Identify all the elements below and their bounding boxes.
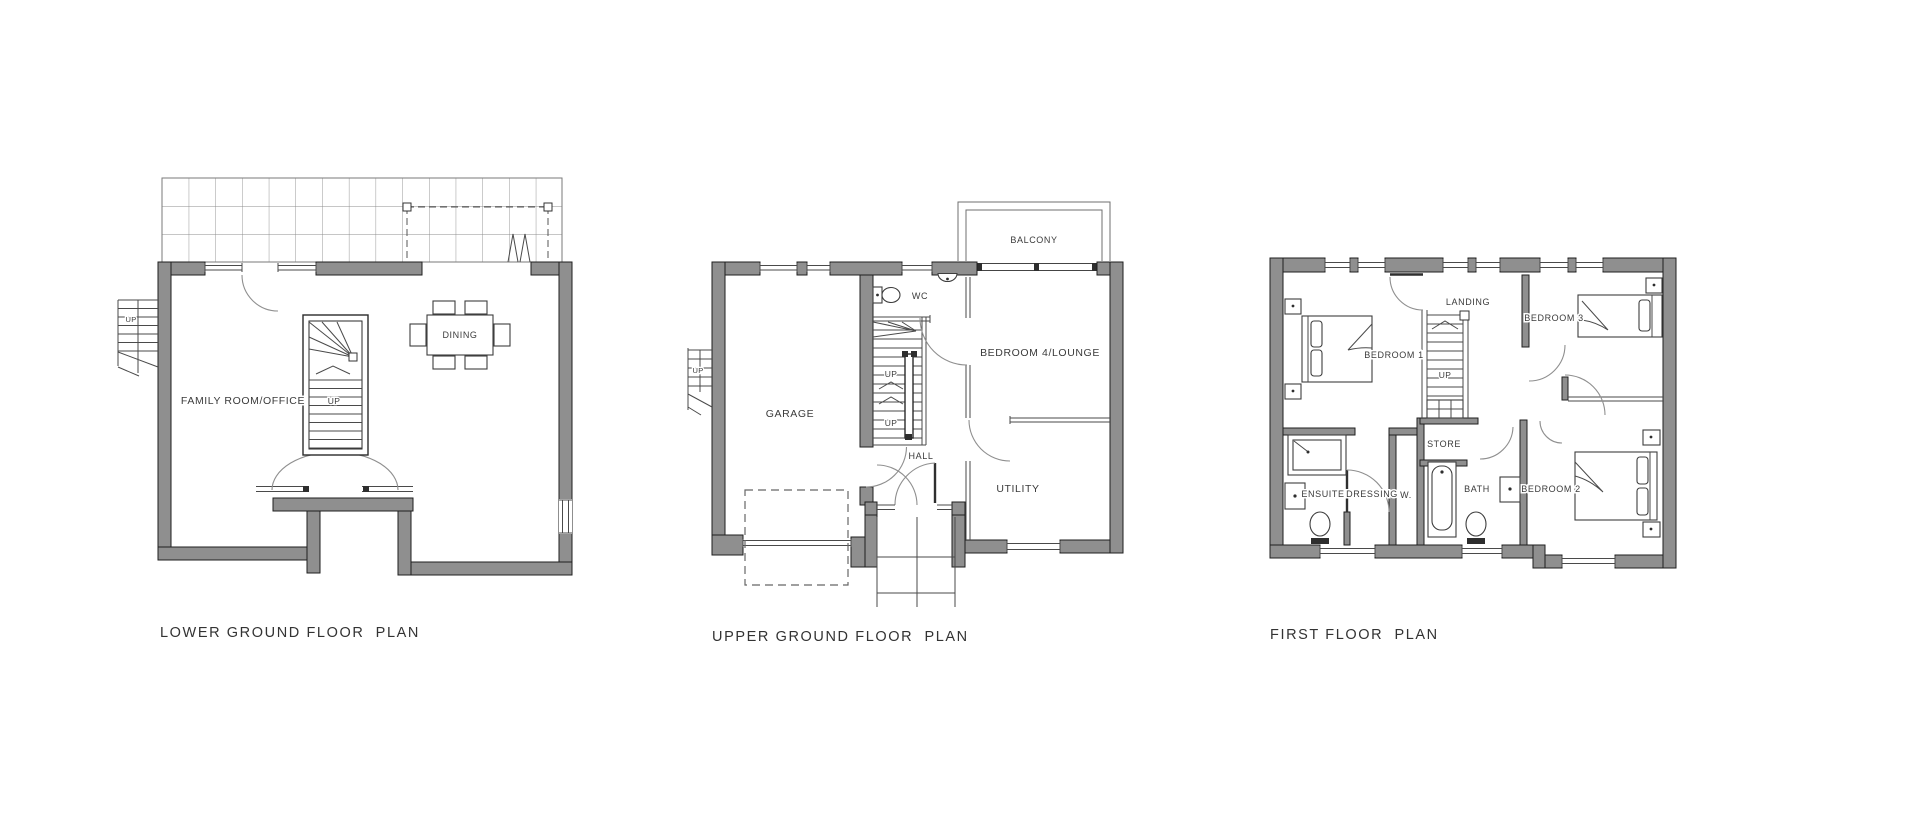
room-label-wc: WC (912, 291, 928, 301)
terrace-post (544, 203, 552, 211)
stair-label-up: UP (885, 369, 897, 379)
toilet-icon (1310, 512, 1330, 536)
room-label-wardrobe: W. (1400, 490, 1412, 500)
sheet-background (0, 0, 1923, 828)
chair (433, 301, 455, 314)
stair-label-up: UP (1439, 370, 1451, 380)
toilet-icon (1466, 512, 1486, 536)
room-label-bedroom2: BEDROOM 2 (1521, 484, 1580, 494)
room-label-ensuite: ENSUITE (1301, 489, 1344, 499)
stair-label-up: UP (125, 315, 136, 324)
room-label-hall: HALL (909, 451, 934, 461)
room-label-bedroom4-lounge: BEDROOM 4/LOUNGE (980, 347, 1100, 359)
terrace-deck-grid (162, 178, 562, 262)
room-label-garage: GARAGE (766, 408, 815, 420)
room-label-dressing: DRESSING (1346, 489, 1398, 499)
stair-label-up: UP (885, 418, 897, 428)
plan-title-lower-ground: LOWER GROUND FLOOR PLAN (160, 625, 420, 641)
room-label-landing: LANDING (1446, 297, 1490, 307)
room-label-bedroom3: BEDROOM 3 (1524, 313, 1583, 323)
chair (433, 356, 455, 369)
room-label-bath: BATH (1464, 484, 1490, 494)
room-label-dining: DINING (442, 330, 477, 340)
chair (465, 356, 487, 369)
plan-title-upper-ground: UPPER GROUND FLOOR PLAN (712, 629, 969, 645)
room-label-store: STORE (1427, 439, 1461, 449)
stair-label-up: UP (692, 366, 703, 375)
room-label-family-room-office: FAMILY ROOM/OFFICE (181, 395, 305, 407)
toilet-icon (882, 288, 900, 303)
interior-stair: UP (303, 315, 368, 455)
floor-plans-drawing: UP UP DINING FAMILY ROOM/OFFICE LOWER GR… (0, 0, 1923, 828)
room-label-balcony: BALCONY (1010, 235, 1057, 245)
chair (465, 301, 487, 314)
room-label-utility: UTILITY (996, 483, 1039, 495)
chair (494, 324, 510, 346)
understair-shelving (1427, 400, 1463, 418)
stair-label-up: UP (328, 396, 340, 406)
plan-title-first-floor: FIRST FLOOR PLAN (1270, 627, 1439, 643)
chair (410, 324, 426, 346)
terrace-post (403, 203, 411, 211)
room-label-bedroom1: BEDROOM 1 (1364, 350, 1423, 360)
